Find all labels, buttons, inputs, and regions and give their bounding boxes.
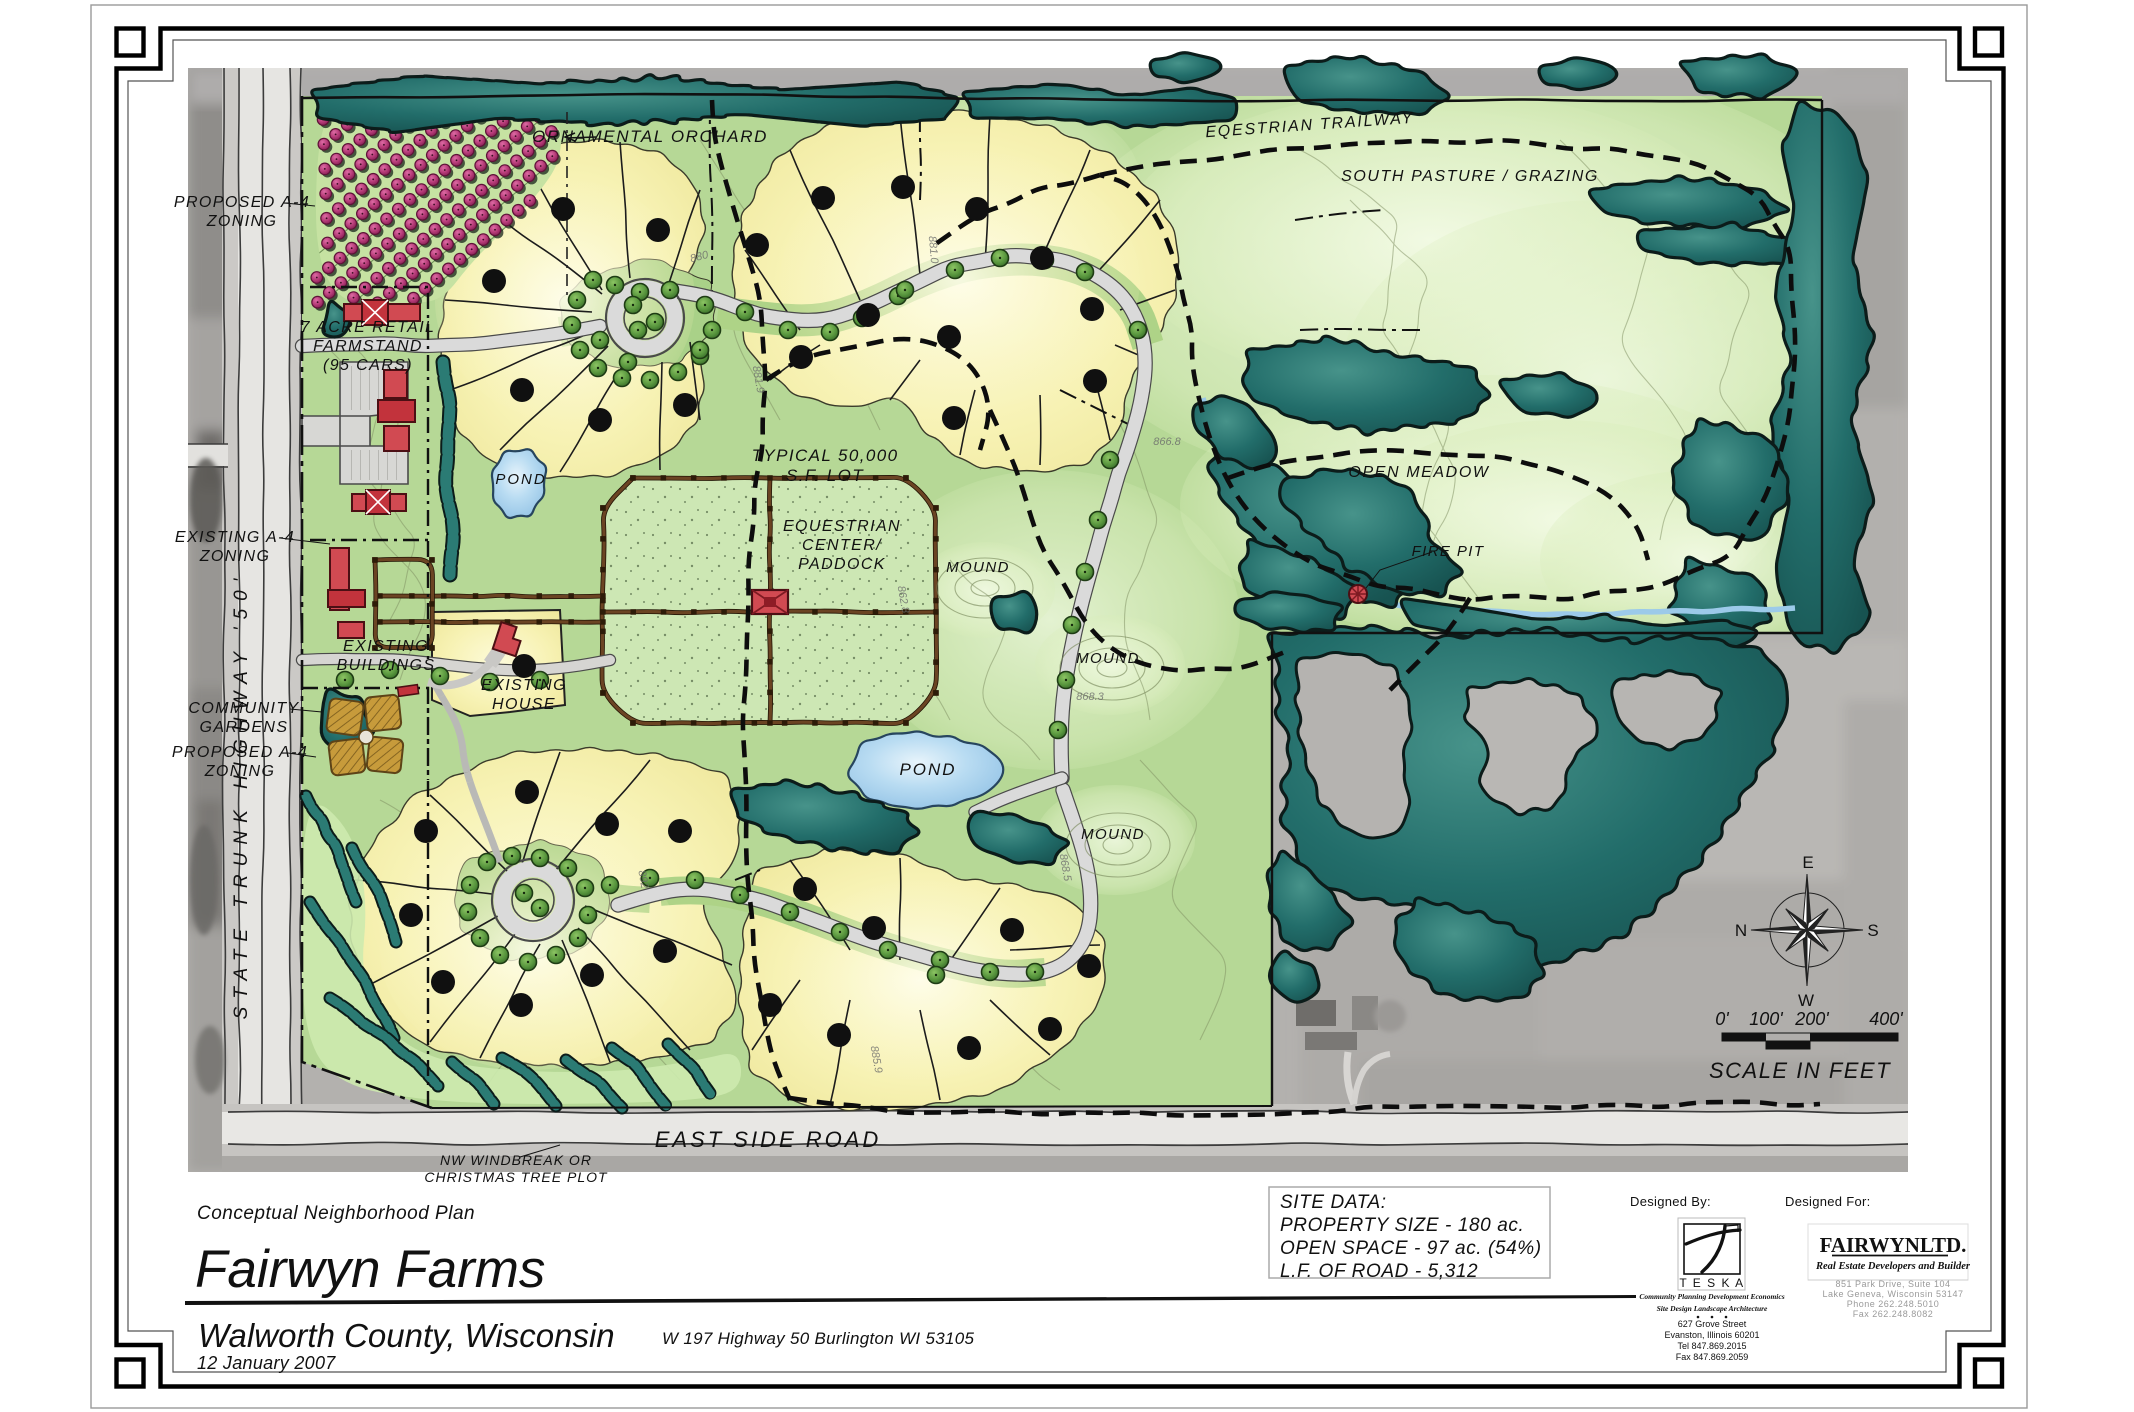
svg-text:100': 100' bbox=[1749, 1009, 1783, 1029]
svg-text:881.0: 881.0 bbox=[926, 236, 940, 265]
svg-text:S.F. LOT: S.F. LOT bbox=[786, 466, 864, 485]
svg-text:Evanston, Illinois 60201: Evanston, Illinois 60201 bbox=[1664, 1330, 1759, 1340]
svg-text:12 January 2007: 12 January 2007 bbox=[197, 1353, 336, 1373]
svg-text:POND: POND bbox=[495, 471, 546, 488]
svg-text:EXISTING: EXISTING bbox=[481, 677, 567, 694]
svg-text:PROPERTY SIZE - 180 ac.: PROPERTY SIZE - 180 ac. bbox=[1280, 1215, 1524, 1236]
svg-text:CENTER/: CENTER/ bbox=[802, 537, 882, 554]
svg-text:EAST SIDE ROAD: EAST SIDE ROAD bbox=[655, 1127, 882, 1152]
svg-text:ZONING: ZONING bbox=[206, 213, 278, 230]
svg-text:FAIRWYNLTD.: FAIRWYNLTD. bbox=[1820, 1233, 1967, 1257]
svg-text:W: W bbox=[1798, 991, 1814, 1010]
svg-text:E: E bbox=[1802, 853, 1813, 872]
svg-text:Real Estate Developers and Bui: Real Estate Developers and Builder bbox=[1815, 1261, 1971, 1272]
svg-text:Fax 847.869.2059: Fax 847.869.2059 bbox=[1676, 1352, 1749, 1362]
svg-text:200': 200' bbox=[1794, 1009, 1829, 1029]
svg-text:Site Design Landscape Archit: Site Design Landscape Architecture bbox=[1657, 1304, 1768, 1313]
svg-text:MOUND: MOUND bbox=[1076, 650, 1140, 667]
svg-text:MOUND: MOUND bbox=[1081, 826, 1145, 843]
svg-text:Walworth County, Wisconsin: Walworth County, Wisconsin bbox=[198, 1317, 615, 1354]
svg-text:851 Park Drive, Suite 104: 851 Park Drive, Suite 104 bbox=[1835, 1279, 1950, 1289]
svg-text:SITE DATA:: SITE DATA: bbox=[1280, 1192, 1387, 1213]
svg-text:STATE TRUNK HIGHWAY ': STATE TRUNK HIGHWAY '50' bbox=[231, 571, 252, 1020]
svg-text:EQUESTRIAN: EQUESTRIAN bbox=[783, 518, 901, 535]
svg-text:Conceptual Neighborhood Plan: Conceptual Neighborhood Plan bbox=[197, 1203, 475, 1224]
svg-text:T E S K A: T E S K A bbox=[1679, 1276, 1744, 1290]
svg-text:POND: POND bbox=[899, 760, 956, 779]
svg-text:SOUTH PASTURE / GRAZING: SOUTH PASTURE / GRAZING bbox=[1341, 168, 1599, 185]
svg-text:Phone 262.248.5010: Phone 262.248.5010 bbox=[1847, 1299, 1940, 1309]
svg-text:400': 400' bbox=[1869, 1009, 1903, 1029]
svg-text:(95 CARS): (95 CARS) bbox=[323, 357, 413, 374]
svg-text:N: N bbox=[1735, 921, 1747, 940]
svg-text:Lake Geneva, Wisconsin 5314: Lake Geneva, Wisconsin 53147 bbox=[1822, 1289, 1963, 1299]
svg-text:NW WINDBREAK OR: NW WINDBREAK OR bbox=[440, 1152, 592, 1168]
svg-text:EXISTING: EXISTING bbox=[343, 638, 429, 655]
svg-text:Fax 262.248.8082: Fax 262.248.8082 bbox=[1853, 1309, 1934, 1319]
svg-text:S: S bbox=[1867, 921, 1878, 940]
svg-text:866.8: 866.8 bbox=[1153, 436, 1181, 448]
svg-text:MOUND: MOUND bbox=[946, 559, 1010, 576]
svg-text:TYPICAL 50,000: TYPICAL 50,000 bbox=[752, 446, 899, 465]
svg-text:HOUSE: HOUSE bbox=[492, 696, 556, 713]
svg-text:FARMSTAND: FARMSTAND bbox=[313, 338, 423, 355]
svg-text:Fairwyn Farms: Fairwyn Farms bbox=[195, 1240, 545, 1299]
svg-text:7 ACRE RETAIL: 7 ACRE RETAIL bbox=[301, 319, 436, 336]
svg-text:W 197 Highway 50 Burlington: W 197 Highway 50 Burlington WI 53105 bbox=[662, 1329, 974, 1348]
svg-text:Community Planning Developmen: Community Planning Development Economics bbox=[1639, 1292, 1784, 1301]
svg-text:BUILDINGS: BUILDINGS bbox=[337, 657, 436, 674]
svg-text:PADDOCK: PADDOCK bbox=[798, 556, 886, 573]
svg-text:868.3: 868.3 bbox=[1076, 691, 1104, 703]
svg-text:EXISTING A-4: EXISTING A-4 bbox=[175, 529, 295, 546]
svg-text:OPEN SPACE - 97 ac. (54%): OPEN SPACE - 97 ac. (54%) bbox=[1280, 1238, 1542, 1259]
svg-text:Designed By:: Designed By: bbox=[1630, 1194, 1711, 1209]
svg-text:PROPOSED A-4: PROPOSED A-4 bbox=[174, 194, 310, 211]
svg-text:FIRE PIT: FIRE PIT bbox=[1412, 543, 1485, 560]
svg-text:L.F. OF ROAD - 5,312: L.F. OF ROAD - 5,312 bbox=[1280, 1261, 1478, 1282]
svg-text:OPEN MEADOW: OPEN MEADOW bbox=[1348, 464, 1489, 481]
svg-text:Tel 847.869.2015: Tel 847.869.2015 bbox=[1677, 1341, 1746, 1351]
svg-text:CHRISTMAS TREE PLOT: CHRISTMAS TREE PLOT bbox=[424, 1169, 608, 1185]
svg-text:SCALE IN FEET: SCALE IN FEET bbox=[1709, 1058, 1891, 1083]
svg-text:627 Grove Street: 627 Grove Street bbox=[1678, 1319, 1747, 1329]
svg-text:Designed For:: Designed For: bbox=[1785, 1194, 1871, 1209]
svg-text:ZONING: ZONING bbox=[199, 548, 271, 565]
svg-text:0': 0' bbox=[1715, 1009, 1729, 1029]
